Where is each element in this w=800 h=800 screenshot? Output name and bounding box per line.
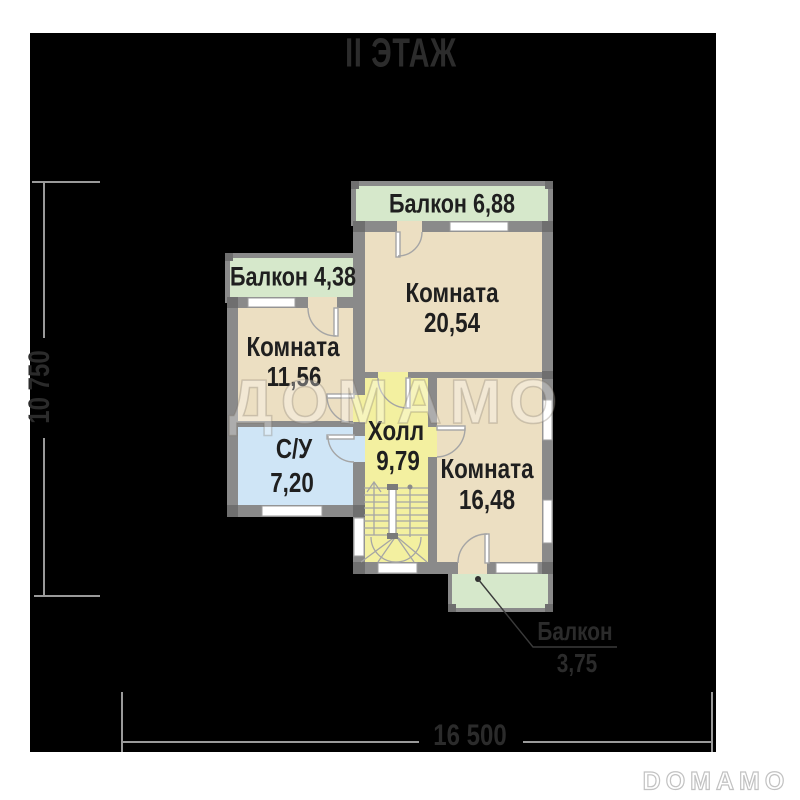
stairs-walkline-dot — [408, 485, 413, 490]
window-hall-left — [354, 518, 364, 556]
floorplan-page: II ЭТАЖ Балкон 6,88 Комната 20,54 Балкон… — [0, 0, 800, 800]
label-bathroom-name: С/У — [271, 435, 316, 463]
label-hall-area: 9,79 — [371, 447, 426, 475]
label-room-20-area: 20,54 — [417, 309, 487, 337]
label-balcony-left: Балкон 4,38 — [214, 264, 372, 291]
window-balcony-left — [248, 298, 295, 307]
domamo-logo: DOMAMO — [643, 770, 790, 795]
balcony-bottom-floor — [451, 574, 549, 609]
dimension-width-label: 16 500 — [424, 721, 516, 751]
label-balcony-bottom-area: 3,75 — [552, 650, 603, 676]
dimension-height-label: 10 750 — [25, 341, 55, 433]
label-bathroom-area: 7,20 — [265, 469, 320, 497]
window-hall-bottom — [378, 563, 417, 573]
label-room-11-name: Комната — [235, 333, 351, 361]
window-room16-bottom — [496, 563, 538, 573]
page-title: II ЭТАЖ — [321, 33, 480, 74]
window-balcony-top — [450, 222, 508, 231]
window-room16-right-2 — [543, 500, 552, 543]
watermark-text: ДОМАМО — [229, 372, 566, 434]
window-bathroom — [262, 506, 322, 516]
label-balcony-top: Балкон 6,88 — [373, 191, 531, 218]
label-room-20-name: Комната — [394, 279, 510, 307]
label-room-16-area: 16,48 — [452, 486, 522, 514]
label-balcony-bottom-name: Балкон — [528, 618, 622, 644]
stairs-rail — [389, 486, 396, 538]
label-room-16-name: Комната — [429, 455, 545, 483]
